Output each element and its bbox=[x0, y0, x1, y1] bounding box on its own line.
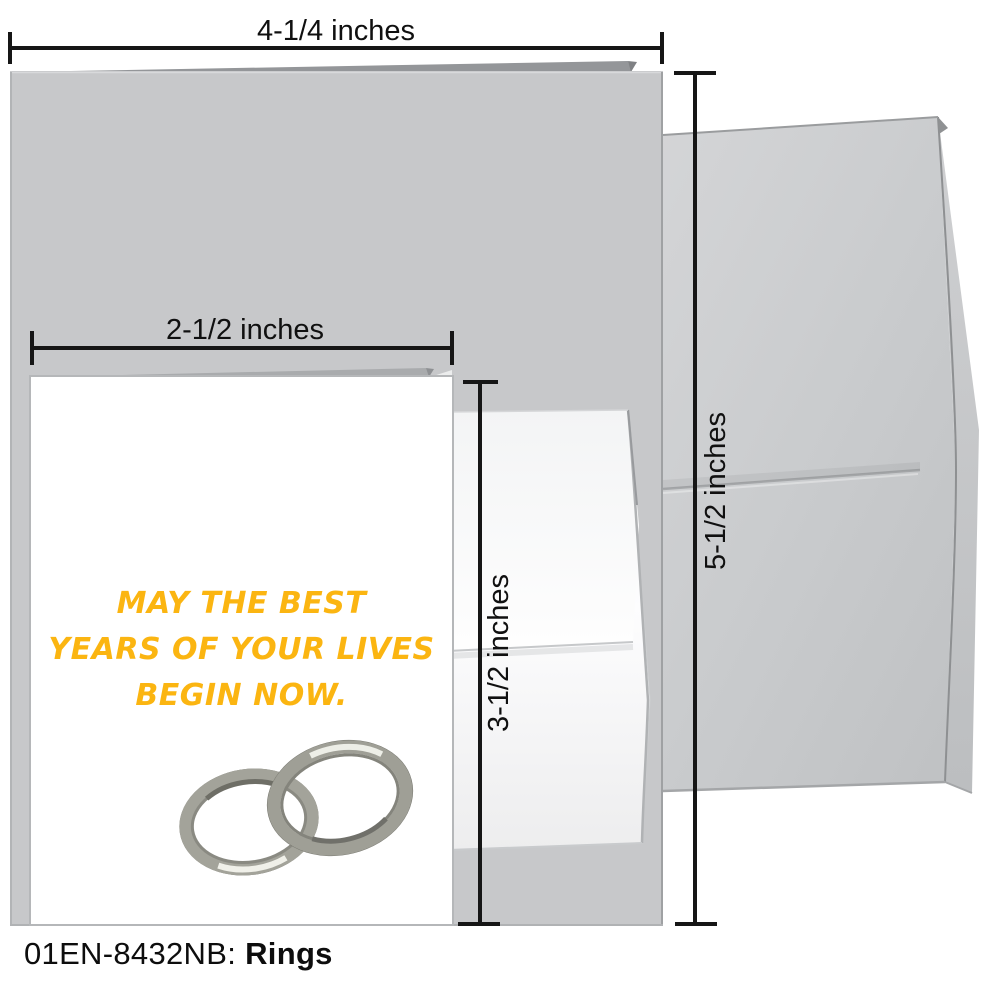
small-card-width-label: 2-1/2 inches bbox=[95, 314, 395, 347]
greeting-line-3: BEGIN NOW. bbox=[30, 673, 453, 719]
product-caption: 01EN-8432NB:Rings bbox=[24, 936, 333, 972]
product-mockup-scene: 4-1/4 inches 2-1/2 inches 3-1/2 inches 5… bbox=[0, 0, 984, 984]
mockup-graphics bbox=[0, 0, 984, 984]
greeting-line-2: YEARS OF YOUR LIVES bbox=[30, 627, 453, 673]
card-greeting-message: MAY THE BEST YEARS OF YOUR LIVES BEGIN N… bbox=[30, 581, 453, 719]
large-card-height-label: 5-1/2 inches bbox=[700, 381, 732, 601]
product-name: Rings bbox=[245, 936, 333, 971]
small-card-height-label: 3-1/2 inches bbox=[483, 543, 515, 763]
large-card-width-label: 4-1/4 inches bbox=[186, 15, 486, 48]
product-code: 01EN-8432NB: bbox=[24, 936, 236, 971]
greeting-line-1: MAY THE BEST bbox=[30, 581, 453, 627]
